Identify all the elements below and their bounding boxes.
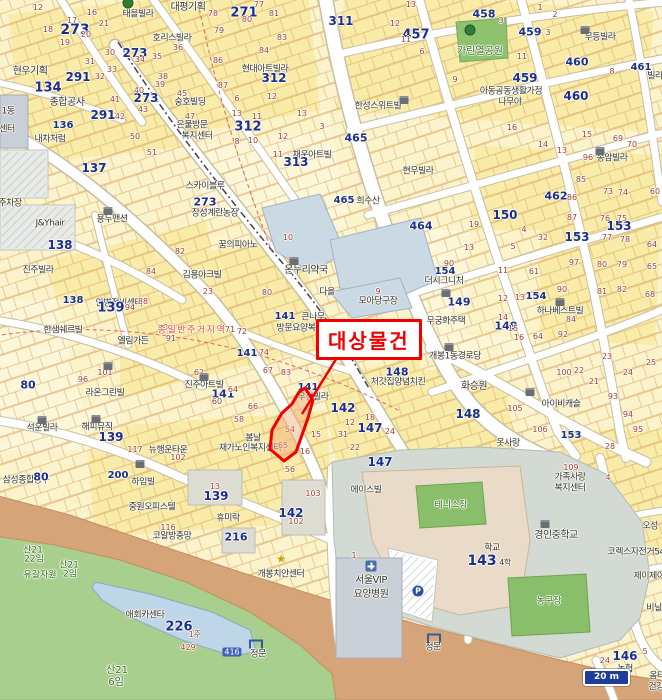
map-canvas[interactable]: 대평기획태을빌라호리스빌라현우기획현대아트빌라종합공사숭호빌딩은물방문복지센터내… [0, 0, 662, 700]
road-number-badge: 416 [222, 648, 241, 657]
target-annotation-box: 대상물건 [316, 319, 422, 360]
scale-bar-label: 20 m [583, 669, 630, 686]
scale-bar: 20 m [583, 669, 630, 686]
hospital-building [336, 558, 402, 658]
neighborhood-park [456, 18, 508, 62]
